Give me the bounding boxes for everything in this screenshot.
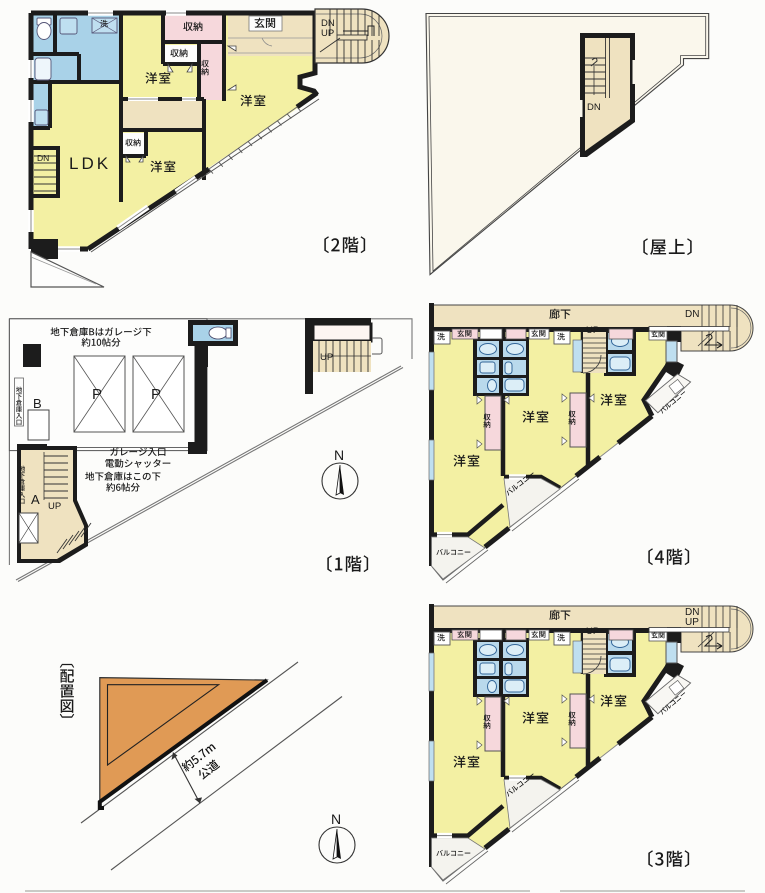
svg-text:UP: UP [320, 352, 333, 363]
svg-text:UP: UP [586, 325, 599, 336]
svg-text:DN: DN [37, 153, 49, 163]
svg-text:UP: UP [685, 617, 699, 628]
svg-text:P: P [151, 386, 161, 403]
svg-text:UP: UP [48, 501, 61, 512]
svg-text:P: P [92, 386, 102, 403]
svg-text:B: B [33, 396, 42, 411]
svg-text:A: A [31, 492, 40, 507]
svg-text:DN: DN [587, 102, 601, 113]
svg-text:UP: UP [586, 626, 599, 637]
svg-text:N: N [334, 447, 344, 463]
svg-text:N: N [331, 811, 341, 827]
svg-text:DN: DN [685, 309, 699, 320]
svg-text:LDK: LDK [69, 154, 111, 173]
svg-text:UP: UP [321, 28, 334, 39]
